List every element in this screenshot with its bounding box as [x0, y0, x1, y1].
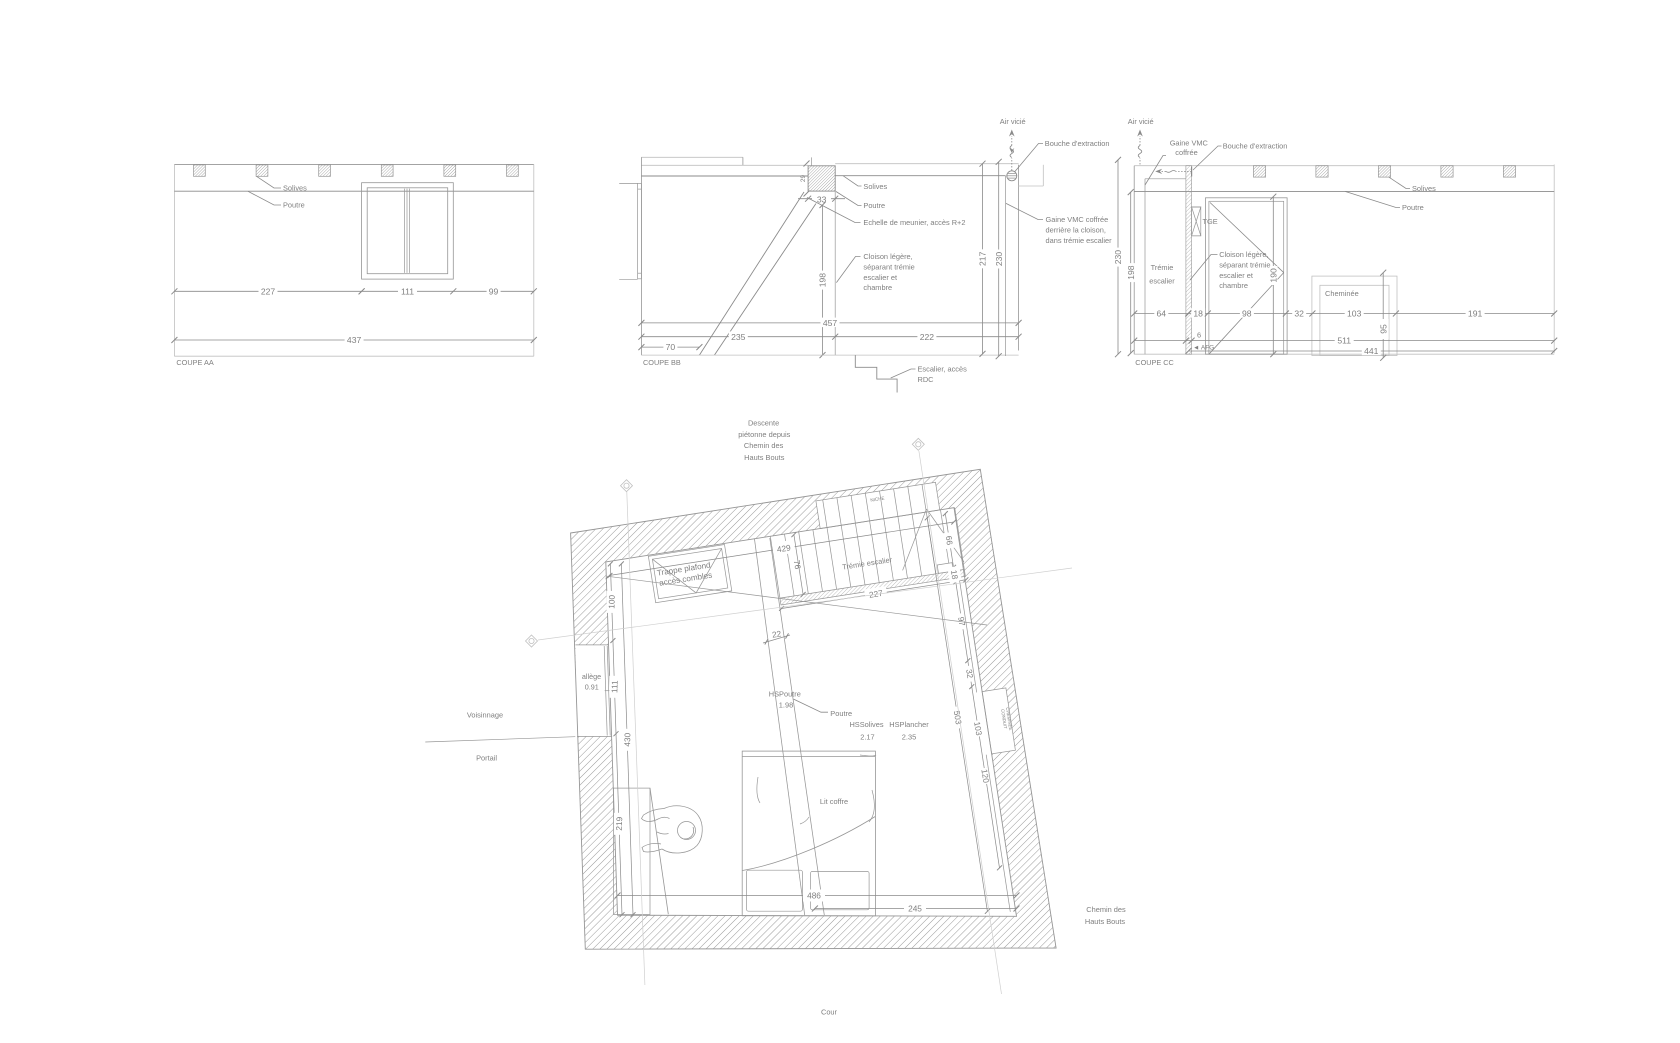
svg-text:Hauts Bouts: Hauts Bouts	[1085, 917, 1126, 926]
svg-text:430: 430	[622, 732, 632, 747]
svg-text:441: 441	[1364, 346, 1379, 356]
svg-text:Chemin des: Chemin des	[1086, 905, 1126, 914]
svg-text:escalier et: escalier et	[863, 273, 897, 282]
svg-text:245: 245	[908, 904, 922, 914]
svg-text:1.98: 1.98	[779, 701, 793, 710]
svg-text:66: 66	[944, 535, 955, 546]
svg-text:Cheminée: Cheminée	[1325, 289, 1359, 298]
svg-text:chambre: chambre	[863, 283, 892, 292]
svg-text:Air vicié: Air vicié	[1128, 117, 1154, 126]
svg-text:chambre: chambre	[1219, 281, 1248, 290]
svg-text:Echelle de meunier, accès R+2: Echelle de meunier, accès R+2	[863, 218, 965, 227]
svg-text:Hauts Bouts: Hauts Bouts	[744, 453, 785, 462]
svg-text:437: 437	[347, 335, 362, 345]
svg-text:511: 511	[1337, 336, 1351, 346]
svg-text:230: 230	[994, 252, 1004, 267]
svg-text:111: 111	[609, 680, 619, 693]
svg-text:COUPE BB: COUPE BB	[643, 358, 681, 367]
svg-text:18: 18	[949, 569, 960, 580]
svg-text:95: 95	[1378, 324, 1388, 334]
svg-text:Descente: Descente	[748, 419, 779, 428]
svg-text:Cloison légère,: Cloison légère,	[863, 252, 912, 261]
svg-text:70: 70	[666, 342, 676, 352]
svg-text:COUPE CC: COUPE CC	[1135, 358, 1174, 367]
svg-text:Bouche d'extraction: Bouche d'extraction	[1045, 139, 1110, 148]
svg-text:coffrée: coffrée	[1175, 148, 1197, 157]
svg-text:2.17: 2.17	[860, 732, 874, 741]
svg-text:198: 198	[818, 273, 828, 288]
svg-text:Cloison légère,: Cloison légère,	[1219, 250, 1268, 259]
svg-text:allège: allège	[582, 672, 601, 681]
svg-text:222: 222	[920, 332, 935, 342]
svg-text:217: 217	[978, 251, 988, 266]
svg-text:98: 98	[1242, 309, 1252, 319]
svg-text:2.35: 2.35	[902, 732, 916, 741]
svg-text:191: 191	[1468, 309, 1483, 319]
svg-text:100: 100	[606, 594, 616, 609]
svg-text:Voisinnage: Voisinnage	[467, 711, 503, 720]
svg-text:227: 227	[261, 286, 276, 296]
svg-text:22: 22	[771, 628, 782, 639]
svg-text:escalier: escalier	[1149, 277, 1175, 286]
svg-text:COUPE AA: COUPE AA	[176, 358, 213, 367]
svg-text:230: 230	[1113, 250, 1123, 265]
svg-text:Lit coffre: Lit coffre	[820, 797, 848, 806]
svg-text:HSPoutre: HSPoutre	[769, 689, 801, 698]
svg-text:◄ AFG: ◄ AFG	[1193, 345, 1214, 352]
svg-text:derrière la cloison,: derrière la cloison,	[1046, 225, 1106, 234]
svg-text:6: 6	[1197, 331, 1201, 340]
svg-text:99: 99	[489, 286, 499, 296]
svg-text:29: 29	[800, 175, 807, 183]
svg-text:64: 64	[1157, 309, 1167, 319]
svg-text:Poutre: Poutre	[1402, 203, 1424, 212]
svg-text:190: 190	[1268, 268, 1278, 283]
svg-text:Bouche d'extraction: Bouche d'extraction	[1223, 142, 1288, 151]
svg-text:32: 32	[1294, 309, 1304, 319]
svg-text:486: 486	[807, 891, 821, 901]
svg-text:Solives: Solives	[863, 182, 887, 191]
svg-text:escalier et: escalier et	[1219, 271, 1253, 280]
svg-text:0.91: 0.91	[585, 683, 599, 692]
svg-text:235: 235	[731, 332, 746, 342]
svg-text:198: 198	[1126, 265, 1136, 280]
svg-text:18: 18	[1193, 309, 1203, 319]
svg-text:dans trémie escalier: dans trémie escalier	[1046, 236, 1113, 245]
svg-text:séparant trémie: séparant trémie	[863, 262, 914, 271]
svg-text:Solives: Solives	[1412, 184, 1436, 193]
svg-text:Gaine VMC coffrée: Gaine VMC coffrée	[1046, 215, 1109, 224]
svg-text:HSPlancher: HSPlancher	[889, 720, 929, 729]
svg-text:HSSolives: HSSolives	[849, 720, 883, 729]
svg-text:Air vicié: Air vicié	[1000, 117, 1026, 126]
svg-text:Cour: Cour	[821, 1008, 838, 1017]
svg-text:111: 111	[401, 286, 414, 296]
svg-text:piétonne depuis: piétonne depuis	[738, 430, 790, 439]
svg-text:RDC: RDC	[918, 375, 935, 384]
svg-text:219: 219	[614, 816, 624, 831]
svg-text:Solives: Solives	[283, 184, 307, 193]
svg-text:Chemin des: Chemin des	[744, 441, 784, 450]
svg-text:Poutre: Poutre	[863, 201, 885, 210]
svg-text:Portail: Portail	[476, 754, 497, 763]
svg-text:séparant trémie: séparant trémie	[1219, 260, 1270, 269]
svg-text:Poutre: Poutre	[830, 709, 852, 718]
svg-text:Trémie: Trémie	[1151, 263, 1174, 272]
svg-text:Poutre: Poutre	[283, 201, 305, 210]
svg-text:457: 457	[823, 318, 838, 328]
svg-text:Gaine VMC: Gaine VMC	[1170, 139, 1209, 148]
svg-text:Escalier, accès: Escalier, accès	[918, 365, 968, 374]
svg-text:76: 76	[792, 559, 803, 570]
svg-text:TGE: TGE	[1203, 217, 1218, 226]
svg-text:103: 103	[1347, 309, 1362, 319]
